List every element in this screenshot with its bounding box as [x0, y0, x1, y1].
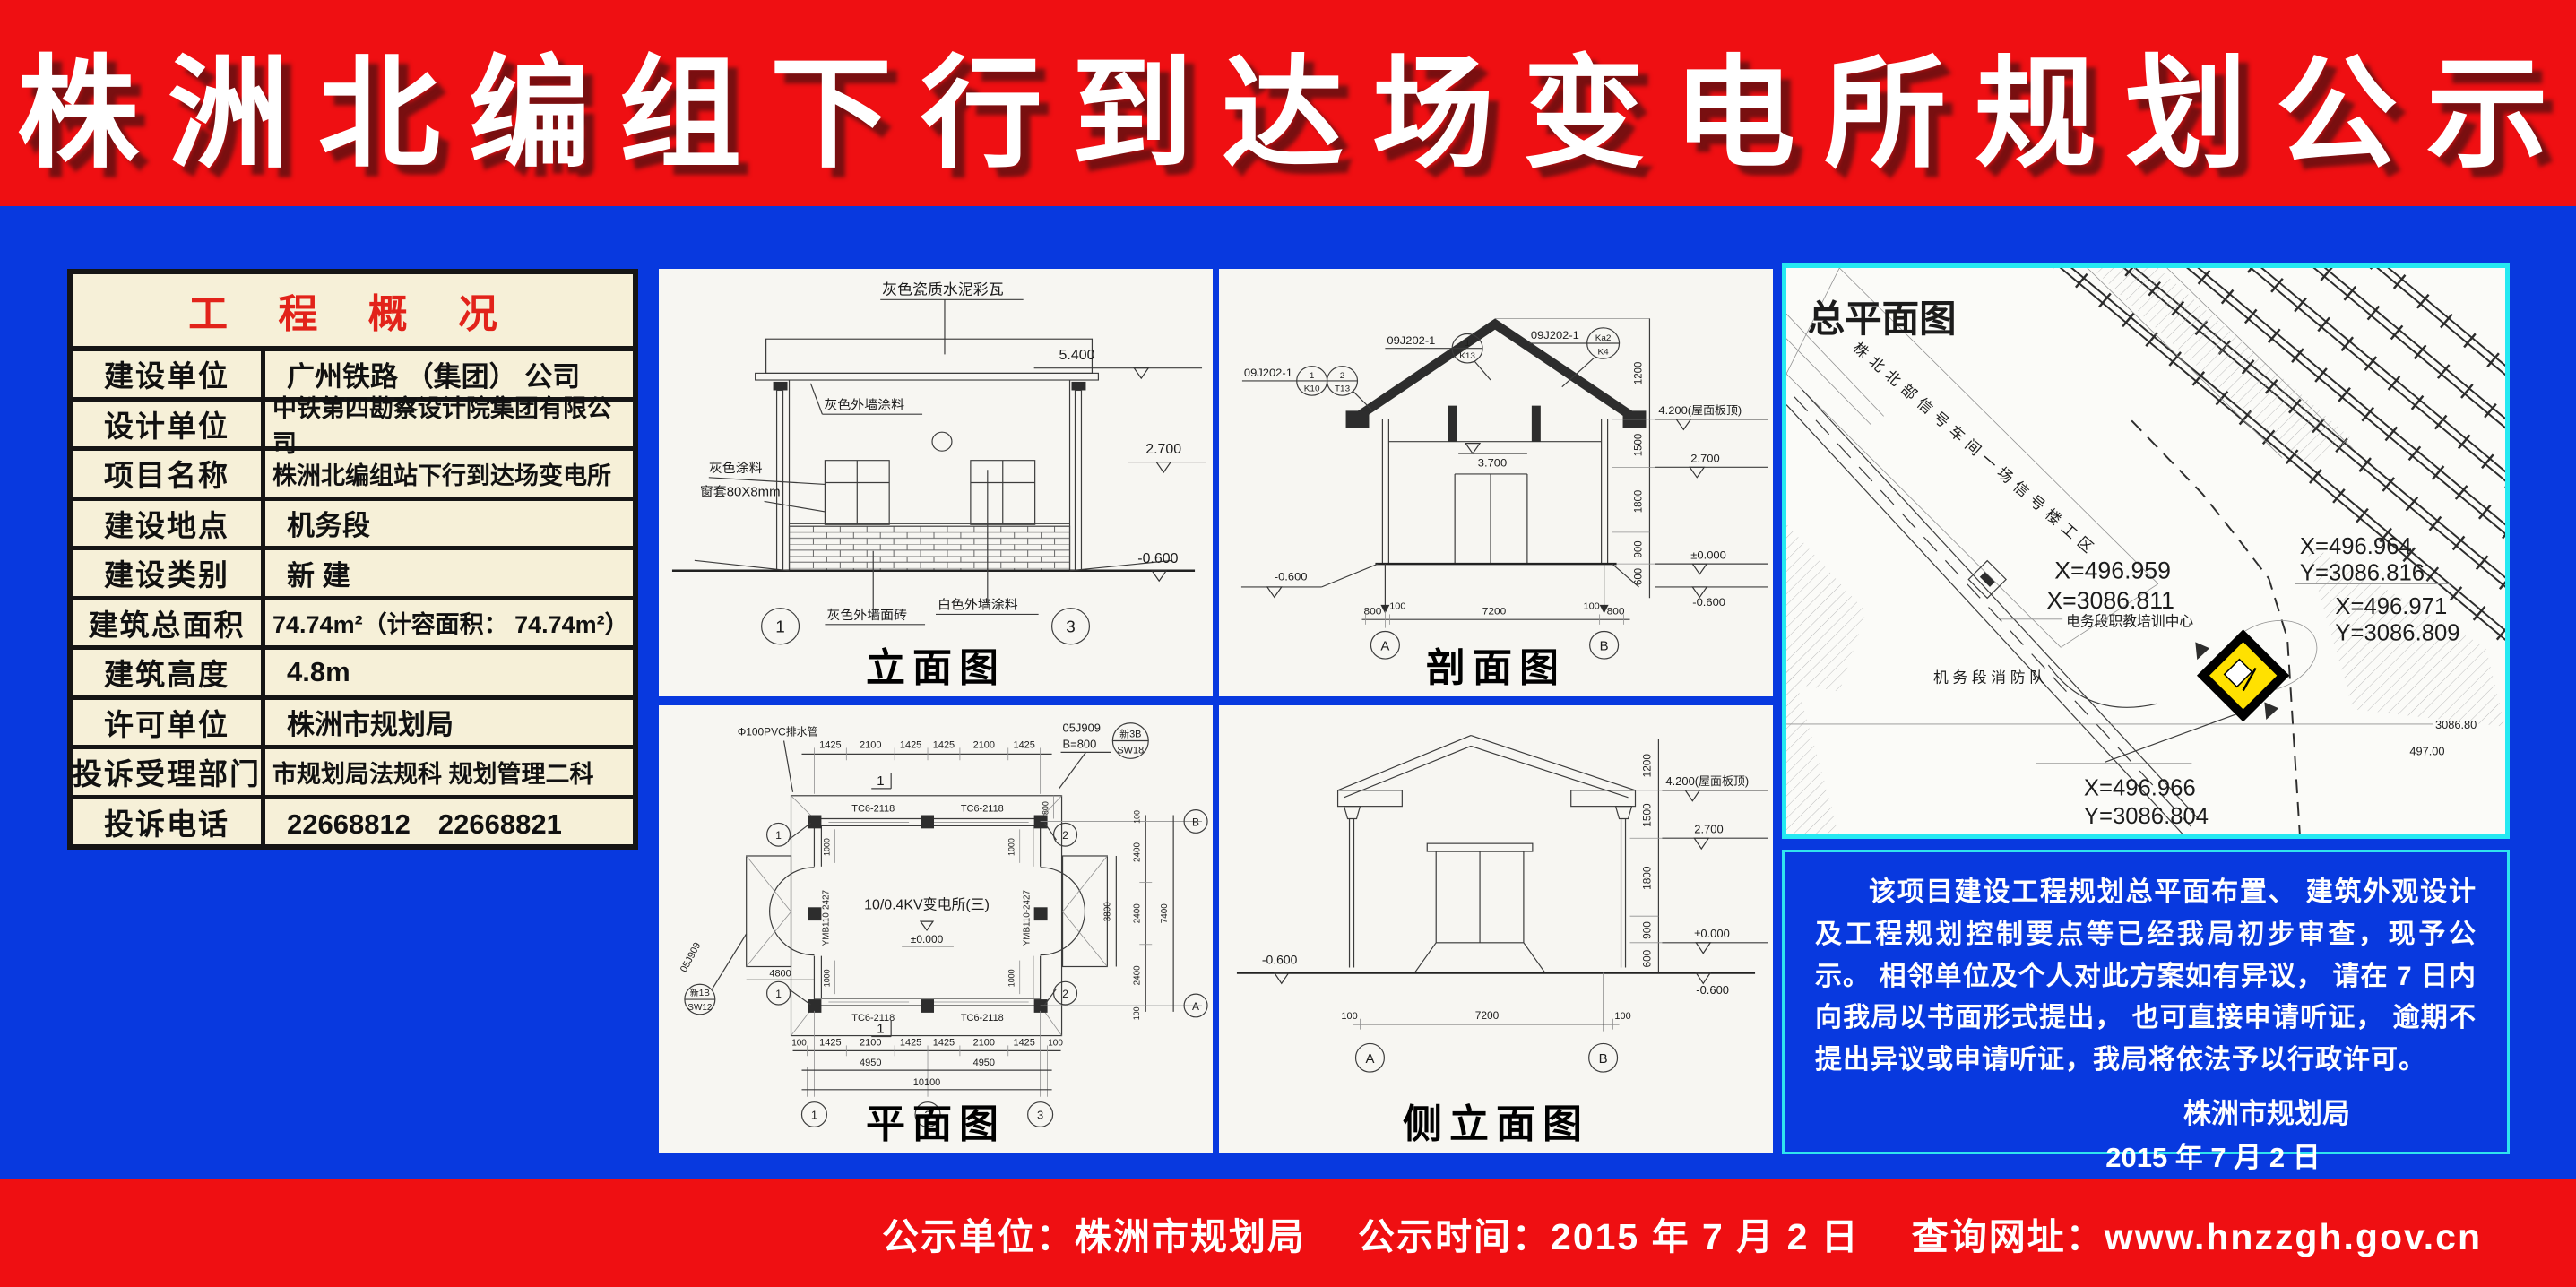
- drawing-title: 剖面图: [1219, 635, 1773, 693]
- ref-code: 09J202-1: [1531, 329, 1579, 341]
- row-label: 建设类别: [73, 550, 265, 596]
- axis-label: 1: [775, 618, 785, 636]
- section-mark: 1: [877, 774, 884, 789]
- row-value: 22668812 22668821: [265, 799, 633, 845]
- table-row: 建设地点机务段: [73, 501, 633, 551]
- footer-url-value: www.hnzzgh.gov.cn: [2105, 1216, 2482, 1257]
- dim-label: 4950: [973, 1058, 995, 1068]
- level-label: 5.400: [1059, 348, 1095, 363]
- axis-label: A: [1192, 1000, 1199, 1013]
- dim-label: 900: [1640, 921, 1653, 939]
- row-label: 建设地点: [73, 501, 265, 547]
- ref-den: SW12: [687, 1003, 713, 1013]
- level-label: 4.200(屋面板顶): [1665, 774, 1749, 788]
- dim-label: 1425: [933, 1037, 955, 1048]
- dim-label: 100: [1048, 1038, 1063, 1048]
- level-label: -0.600: [1262, 953, 1298, 967]
- door-type-label: YMB110-2427: [1023, 890, 1033, 946]
- side-dimensions: 1200 1500 1800 900 600 4.200(屋面板顶) 2.700…: [1262, 739, 1768, 1073]
- building-label: 电务段职教培训中心: [2066, 614, 2193, 630]
- arrow-marker: [2264, 702, 2278, 720]
- dim-label: 7200: [1475, 1009, 1500, 1022]
- row-label: 许可单位: [73, 700, 265, 746]
- material-label: 白色外墙涂料: [938, 598, 1018, 613]
- arrow-marker: [2195, 642, 2209, 660]
- dim-label: 2100: [860, 1037, 881, 1048]
- dim-label: 3800: [1102, 902, 1112, 921]
- dim-label: 1425: [933, 739, 955, 750]
- dim-label: 1000: [1007, 838, 1016, 856]
- table-row: 投诉受理部门市规划局法规科 规划管理二科: [73, 749, 633, 799]
- table-row: 投诉电话22668812 22668821: [73, 799, 633, 845]
- elevation-annotations: 灰色瓷质水泥彩瓦 5.400 灰色外墙涂料 2.700 灰色涂料 窗套80X8m…: [700, 281, 1206, 644]
- dim-label: 2400: [1132, 842, 1142, 862]
- dim-label: 10100: [913, 1077, 940, 1088]
- row-label: 设计单位: [73, 402, 265, 447]
- plan-labels: TC6-2118 TC6-2118 TC6-2118 TC6-2118 YMB1…: [679, 721, 1148, 1024]
- dim-label: 7200: [1482, 606, 1507, 618]
- table-row: 建筑总面积74.74m²（计容面积： 74.74m²）: [73, 600, 633, 651]
- ref-den: SW18: [1117, 745, 1144, 756]
- building-label: 机 务 段 消 防 队: [1933, 669, 2044, 687]
- notice-body: 该项目建设工程规划总平面布置、 建筑外观设计及工程规划控制要点等已经我局初步审查…: [1815, 872, 2477, 1082]
- level-label: 2.700: [1690, 453, 1719, 465]
- level-label: -0.600: [1275, 570, 1308, 583]
- material-label: 窗套80X8mm: [700, 484, 781, 500]
- spot-elevation: 3086.80: [2435, 718, 2477, 731]
- coordinate-label: X=3086.811: [2046, 587, 2174, 614]
- row-value: 株洲北编组站下行到达场变电所: [265, 451, 633, 497]
- axis-label: B: [1192, 816, 1199, 828]
- dim-label: 1800: [1640, 866, 1653, 890]
- notice-signer: 株洲市规划局: [1815, 1091, 2477, 1131]
- dim-label: 100: [791, 1038, 807, 1048]
- coordinate-label: Y=3086.809: [2335, 620, 2459, 645]
- footer-url: 查询网址：www.hnzzgh.gov.cn: [1912, 1216, 2482, 1257]
- table-title: 工 程 概 况: [73, 274, 633, 351]
- ref-den: K4: [1598, 348, 1610, 358]
- notice-date: 2015 年 7 月 2 日: [1815, 1135, 2477, 1175]
- elevation-panel: 灰色瓷质水泥彩瓦 5.400 灰色外墙涂料 2.700 灰色涂料 窗套80X8m…: [659, 269, 1213, 696]
- row-value: 中铁第四勘察设计院集团有限公司: [265, 402, 633, 447]
- spot-elevation: 497.00: [2409, 744, 2444, 757]
- level-label: 3.700: [1478, 457, 1507, 470]
- ref-num: Ka2: [1595, 333, 1612, 343]
- ref-den: T13: [1335, 384, 1350, 394]
- dim-label: 1500: [1640, 803, 1653, 827]
- row-value: 74.74m²（计容面积： 74.74m²）: [265, 600, 633, 646]
- table-row: 许可单位株洲市规划局: [73, 700, 633, 750]
- elevation-drawing: 灰色瓷质水泥彩瓦 5.400 灰色外墙涂料 2.700 灰色涂料 窗套80X8m…: [659, 269, 1213, 696]
- area-label: 株北北部信号车间一场信号楼工区: [1849, 339, 2101, 560]
- plan-dimensions: 1425 2100 1425 1425 2100 1425 1 1 4800 1…: [747, 739, 1207, 1127]
- project-overview-table: 工 程 概 况 建设单位广州铁路 （集团） 公司 设计单位中铁第四勘察设计院集团…: [67, 269, 638, 850]
- dim-label: 800: [1363, 606, 1381, 618]
- material-label: 灰色涂料: [709, 461, 763, 476]
- dim-label: 7400: [1160, 903, 1170, 923]
- dim-label: 100: [1132, 810, 1141, 824]
- level-label: 2.700: [1694, 822, 1723, 835]
- door-type-label: YMB110-2427: [821, 890, 831, 946]
- dim-label: 1000: [822, 838, 831, 856]
- footer-unit-value: 株洲市规划局: [1075, 1216, 1306, 1257]
- level-label: 4.200(屋面板顶): [1658, 404, 1742, 417]
- site-plan-panel: 总平面图 株北北部信号车间一场信号楼工区 X=496.959 X=3086.81…: [1782, 263, 2510, 839]
- row-value: 市规划局法规科 规划管理二科: [265, 749, 633, 795]
- material-label: 灰色外墙涂料: [824, 398, 904, 413]
- footer-unit: 公示单位：株洲市规划局: [882, 1216, 1306, 1257]
- plan-drawing: TC6-2118 TC6-2118 TC6-2118 TC6-2118 YMB1…: [659, 705, 1213, 1153]
- section-drawing: 09J202-1 1 K10 2 T13 09J202-1 1 K13 09J2…: [1219, 269, 1773, 696]
- dim-label: 100: [1341, 1011, 1357, 1022]
- ref-den: K10: [1304, 384, 1320, 394]
- axis-label: B: [1599, 1052, 1608, 1067]
- ref-code: 05J909: [1063, 721, 1101, 735]
- pvc-label: Φ100PVC排水管: [738, 726, 818, 739]
- section-panel: 09J202-1 1 K10 2 T13 09J202-1 1 K13 09J2…: [1219, 269, 1773, 696]
- dim-label: 2100: [973, 1037, 995, 1048]
- footer-time: 公示时间：2015 年 7 月 2 日: [1358, 1216, 1860, 1257]
- ref-den: K13: [1459, 351, 1475, 361]
- table-row: 项目名称株洲北编组站下行到达场变电所: [73, 451, 633, 501]
- dim-label: 900: [1632, 540, 1644, 558]
- dim-label: 100: [1389, 601, 1405, 612]
- row-value: 4.8m: [265, 650, 633, 695]
- coordinate-label: Y=3086.816: [2300, 561, 2425, 586]
- site-marker: [2203, 635, 2283, 715]
- dim-label: 1425: [1013, 739, 1034, 750]
- footer-time-label: 公示时间：: [1358, 1216, 1551, 1257]
- dim-label: 1500: [1632, 433, 1644, 456]
- row-label: 投诉受理部门: [73, 749, 265, 795]
- ref-num: 2: [1340, 371, 1345, 381]
- ref-code: 09J202-1: [1387, 334, 1435, 347]
- footer-banner: 公示单位：株洲市规划局公示时间：2015 年 7 月 2 日查询网址：www.h…: [0, 1179, 2576, 1287]
- drawing-title: 平面图: [659, 1092, 1213, 1149]
- dim-label: 100: [1614, 1011, 1630, 1022]
- ref-code: 09J202-1: [1244, 367, 1292, 379]
- row-label: 建筑高度: [73, 650, 265, 695]
- ref-code: 05J909: [679, 941, 704, 974]
- level-label: -0.600: [1692, 596, 1725, 609]
- coordinate-label: Y=3086.804: [2084, 804, 2209, 829]
- footer-text: 公示单位：株洲市规划局公示时间：2015 年 7 月 2 日查询网址：www.h…: [882, 1206, 2482, 1260]
- building-section: [1241, 318, 1647, 613]
- wall-type-label: TC6-2118: [961, 1013, 1004, 1024]
- dim-label: 2100: [973, 739, 995, 750]
- dim-label: 1425: [1013, 1037, 1034, 1048]
- dim-label: 1425: [819, 1037, 841, 1048]
- side-elevation-drawing: 1200 1500 1800 900 600 4.200(屋面板顶) 2.700…: [1219, 705, 1773, 1153]
- row-label: 建设单位: [73, 351, 265, 397]
- ref-num: 1: [1465, 339, 1470, 349]
- axis-label: 1: [775, 829, 782, 842]
- dim-label: 1800: [1632, 489, 1644, 513]
- public-notice-text: 该项目建设工程规划总平面布置、 建筑外观设计及工程规划控制要点等已经我局初步审查…: [1782, 850, 2510, 1154]
- dim-label: 1000: [1007, 969, 1016, 987]
- level-label: ±0.000: [1690, 549, 1726, 562]
- dim-label: 4800: [769, 968, 791, 979]
- footer-unit-label: 公示单位：: [882, 1216, 1075, 1257]
- level-label: ±0.000: [1694, 927, 1730, 940]
- dim-label: 800: [1042, 801, 1050, 815]
- axis-label: 3: [1066, 618, 1076, 636]
- dim-label: 2100: [860, 739, 881, 750]
- row-label: 建筑总面积: [73, 600, 265, 646]
- page-title: 株洲北编组下行到达场变电所规划公示: [0, 15, 2576, 192]
- dim-label: 2400: [1132, 965, 1142, 985]
- dim-label: 600: [1640, 949, 1653, 967]
- material-label: 灰色外墙面砖: [826, 608, 907, 623]
- wall-type-label: TC6-2118: [851, 1013, 895, 1024]
- level-label: -0.600: [1696, 983, 1729, 997]
- coordinate-label: X=496.971: [2335, 594, 2447, 619]
- plan-building: [747, 796, 1108, 1036]
- row-label: 项目名称: [73, 451, 265, 497]
- wall-type-label: TC6-2118: [851, 804, 895, 815]
- ref-num: 1: [1310, 371, 1315, 381]
- table-row: 设计单位中铁第四勘察设计院集团有限公司: [73, 402, 633, 452]
- coordinate-label: X=496.964: [2300, 534, 2412, 559]
- dim-label: 1425: [900, 1037, 921, 1048]
- row-value: 新 建: [265, 550, 633, 596]
- coordinate-label: X=496.966: [2084, 776, 2196, 801]
- section-dimensions: 3.700 1200 1500 1800 900 600 4.200(屋面板顶)…: [1267, 318, 1768, 659]
- site-plan-drawing: 总平面图 株北北部信号车间一场信号楼工区 X=496.959 X=3086.81…: [1786, 268, 2505, 834]
- ref-code: B=800: [1063, 737, 1097, 750]
- axis-label: A: [1365, 1052, 1374, 1067]
- row-value: 机务段: [265, 501, 633, 547]
- ref-num: 新3B: [1119, 728, 1141, 740]
- footer-url-label: 查询网址：: [1912, 1216, 2105, 1257]
- table-row: 建设类别新 建: [73, 550, 633, 600]
- axis-label: 2: [1062, 988, 1068, 1000]
- header-banner: 株洲北编组下行到达场变电所规划公示: [0, 0, 2576, 206]
- plan-panel: TC6-2118 TC6-2118 TC6-2118 TC6-2118 YMB1…: [659, 705, 1213, 1153]
- footer-time-value: 2015 年 7 月 2 日: [1551, 1216, 1860, 1257]
- coordinate-label: X=496.959: [2054, 557, 2171, 584]
- side-elevation-panel: 1200 1500 1800 900 600 4.200(屋面板顶) 2.700…: [1219, 705, 1773, 1153]
- ref-num: 新1B: [690, 987, 711, 998]
- dim-label: 1425: [819, 739, 841, 750]
- dim-label: 600: [1632, 567, 1644, 585]
- room-label: 10/0.4KV变电所(三): [864, 896, 990, 912]
- table-row: 建筑高度4.8m: [73, 650, 633, 700]
- material-label: 灰色瓷质水泥彩瓦: [882, 281, 1004, 298]
- row-label: 投诉电话: [73, 799, 265, 845]
- section-mark: 1: [877, 1023, 884, 1037]
- dim-label: 100: [1584, 601, 1600, 612]
- dim-label: 4950: [860, 1058, 881, 1068]
- site-title: 总平面图: [1808, 298, 1957, 340]
- axis-label: 1: [775, 988, 782, 1000]
- level-label: ±0.000: [911, 933, 944, 946]
- building-elevation: [672, 339, 1195, 571]
- dim-label: 800: [1607, 606, 1625, 618]
- drawing-title: 立面图: [659, 635, 1213, 693]
- dim-label: 1000: [822, 969, 831, 987]
- drawing-title: 侧立面图: [1219, 1092, 1773, 1149]
- dim-label: 1200: [1640, 754, 1653, 778]
- level-label: 2.700: [1145, 442, 1181, 457]
- dim-label: 100: [1132, 1006, 1141, 1020]
- dim-label: 2400: [1132, 903, 1142, 923]
- dim-label: 1200: [1632, 361, 1644, 384]
- row-value: 株洲市规划局: [265, 700, 633, 746]
- side-building: [1237, 736, 1755, 973]
- site-labels: 总平面图 株北北部信号车间一场信号楼工区 X=496.959 X=3086.81…: [1808, 298, 2477, 829]
- wall-type-label: TC6-2118: [961, 804, 1004, 815]
- axis-label: 2: [1062, 829, 1068, 842]
- dim-label: 1425: [900, 739, 921, 750]
- level-label: -0.600: [1137, 551, 1179, 566]
